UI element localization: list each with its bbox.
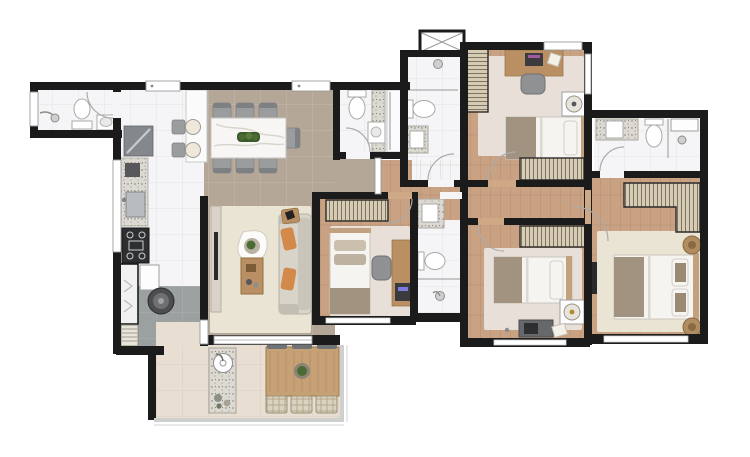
door-gap [488, 180, 516, 187]
toilet [406, 100, 435, 118]
hall-door-leaf [375, 158, 381, 194]
tv [214, 232, 218, 280]
dining-chair [213, 103, 231, 120]
dining-chair [259, 156, 277, 173]
shower-shelf [671, 119, 698, 131]
wardrobe [326, 200, 388, 221]
service-balcony-door [200, 320, 208, 344]
books [246, 264, 256, 272]
potted-plant [214, 394, 222, 402]
window [585, 54, 591, 94]
wicker-chair [291, 396, 312, 413]
shower-head [678, 136, 686, 144]
door-gap [346, 152, 370, 159]
washbasin [410, 131, 424, 148]
double-bed [614, 253, 699, 321]
computer [395, 283, 411, 301]
towel-shelf [121, 325, 138, 346]
pillow [334, 254, 366, 265]
faucet [122, 198, 126, 202]
wardrobe [520, 226, 585, 247]
dining-chair [236, 103, 254, 120]
door-gap [478, 218, 504, 225]
desk-chair [372, 256, 391, 280]
floor-plan [0, 0, 750, 457]
single-bed [329, 228, 371, 314]
dining-chair [213, 156, 231, 173]
speaker-table [562, 92, 586, 116]
window [326, 318, 390, 323]
ventilation-shaft [420, 31, 464, 53]
single-bed [506, 116, 587, 160]
dishwasher [140, 265, 159, 290]
window [494, 340, 566, 345]
kitchen-sink [126, 192, 145, 217]
pillow [564, 121, 577, 155]
door-gap [585, 190, 591, 224]
door-gap [428, 180, 454, 187]
window [113, 160, 121, 252]
pillow [550, 261, 563, 299]
table-plant [237, 132, 260, 142]
headboard [693, 253, 699, 321]
toilet [418, 252, 445, 270]
refrigerator [119, 264, 138, 324]
coffee-table [238, 231, 267, 261]
sofa [279, 214, 311, 314]
keyboard [524, 323, 538, 334]
closet [520, 158, 584, 180]
toilet [645, 119, 663, 147]
speaker-table [560, 300, 584, 324]
single-bed [494, 256, 572, 304]
table-plant [247, 241, 256, 250]
desk-chair [521, 74, 545, 94]
window [544, 42, 582, 50]
tv-panel [592, 262, 597, 294]
headboard [566, 256, 572, 304]
wicker-chair [316, 396, 337, 413]
pillow [334, 240, 366, 251]
round-sink [214, 354, 233, 373]
drain-board [125, 163, 140, 177]
glass-rail [340, 345, 344, 422]
glass-rail [154, 418, 344, 422]
door-gap [600, 171, 624, 178]
door-gap [388, 192, 412, 199]
shower-head [51, 114, 59, 122]
laptop [525, 53, 543, 66]
balcony-furniture [209, 336, 339, 413]
headboard [329, 228, 371, 233]
window [30, 92, 38, 126]
dining-chair [236, 156, 254, 173]
door-gap [113, 92, 121, 118]
wood-coffee-table [241, 258, 263, 294]
side-table [281, 208, 300, 224]
dining-chair [259, 103, 277, 120]
wicker-chair [266, 396, 287, 413]
wardrobe [465, 48, 488, 112]
toilet [348, 90, 366, 119]
potted-plant [224, 400, 231, 407]
window [604, 336, 688, 342]
shower-head [434, 60, 443, 69]
washbasin [422, 204, 438, 222]
door-gap [440, 192, 462, 199]
floor-plan-svg [0, 0, 750, 457]
washbasin [606, 121, 623, 138]
